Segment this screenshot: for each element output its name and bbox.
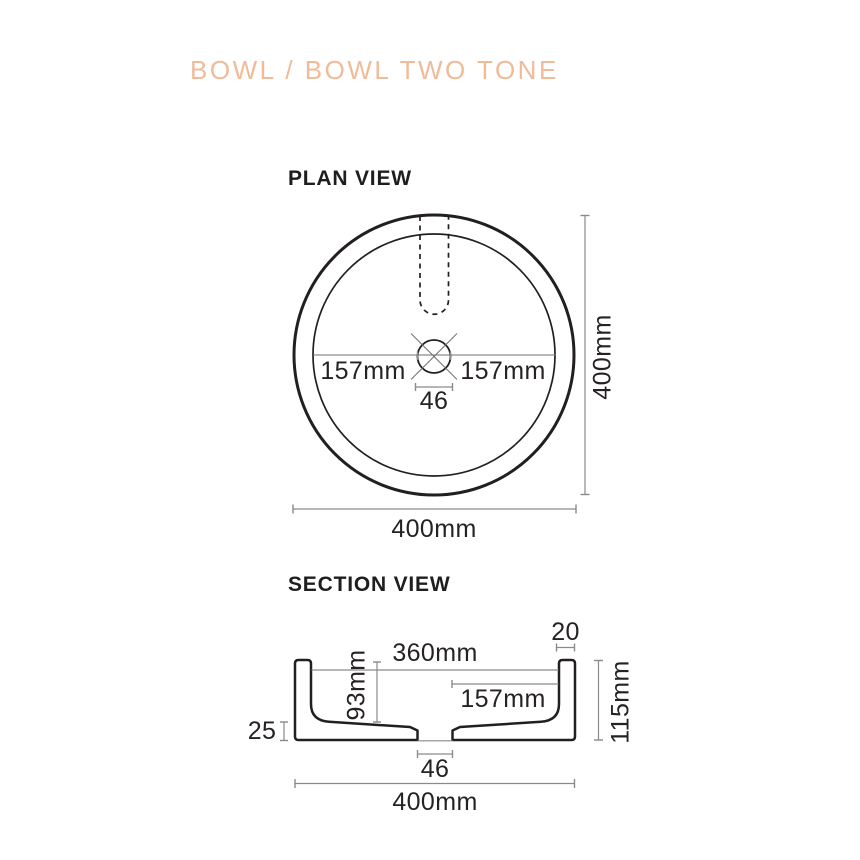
plan-dim-width-label: 400mm: [391, 515, 476, 543]
section-dim-rim-label: 20: [551, 618, 580, 646]
plan-dim-drain-label: 46: [420, 387, 449, 415]
section-view-drawing: 20 360mm 93mm 157mm 115mm 25 46 400mm: [248, 618, 635, 816]
plan-dim-radius-right-label: 157mm: [460, 357, 545, 385]
plan-dim-radius-left-label: 157mm: [320, 357, 405, 385]
section-dim-height-label: 115mm: [607, 660, 635, 744]
plan-view-drawing: 157mm 157mm 46 400mm 400mm: [293, 215, 617, 543]
section-dim-depth-label: 93mm: [343, 649, 371, 720]
tap-hole-dashed-outline: [420, 216, 449, 314]
section-dim-drain-label: 46: [421, 755, 450, 783]
section-dim-width-label: 400mm: [392, 788, 477, 816]
section-dim-center-label: 157mm: [460, 685, 545, 713]
section-dim-base-label: 25: [248, 717, 277, 745]
technical-drawing: 157mm 157mm 46 400mm 400mm 20 360mm: [0, 0, 860, 860]
section-dim-inner-width-label: 360mm: [392, 639, 477, 667]
plan-dim-height-label: 400mm: [589, 314, 617, 399]
